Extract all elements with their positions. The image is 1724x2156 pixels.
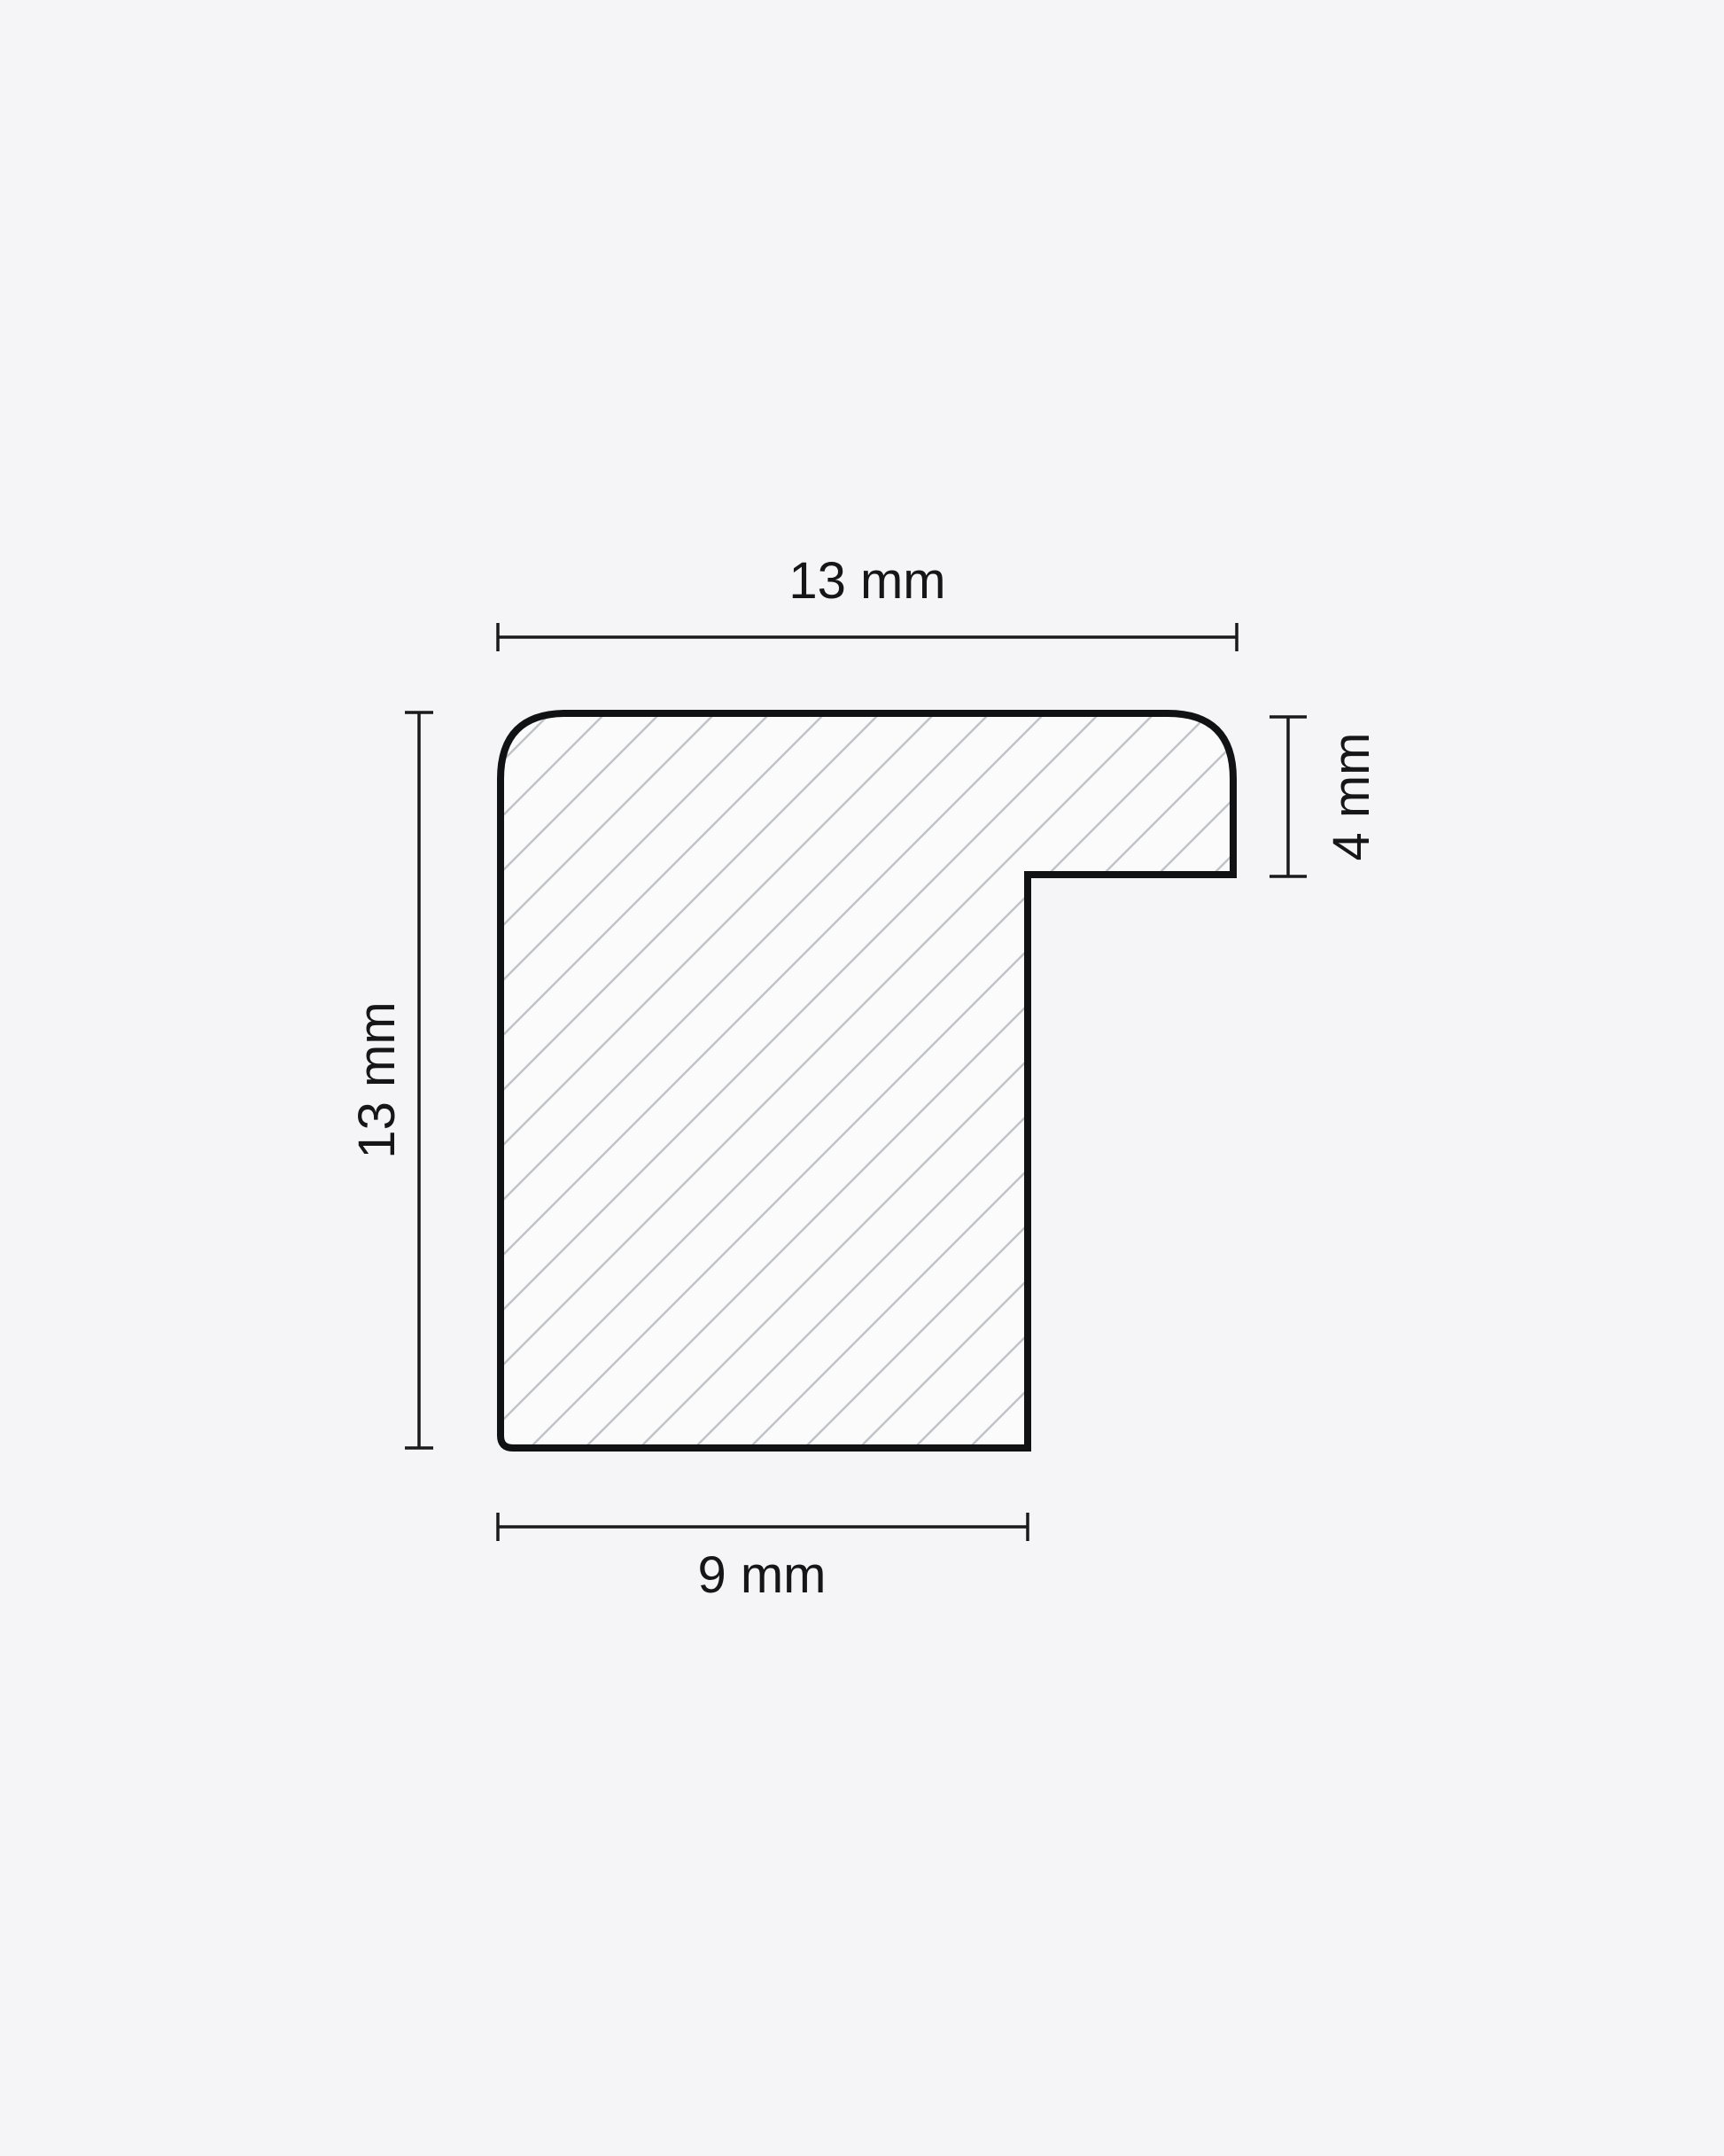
diagram-canvas: 13 mm 13 mm 4 mm 9 mm (0, 0, 1724, 2156)
dimension-left-label: 13 mm (348, 1001, 406, 1158)
dimension-top-label: 13 mm (788, 552, 945, 610)
dimension-left: 13 mm (348, 712, 433, 1448)
dimension-right: 4 mm (1270, 717, 1380, 876)
profile-cross-section-diagram: 13 mm 13 mm 4 mm 9 mm (0, 0, 1724, 2156)
dimension-bottom-label: 9 mm (698, 1546, 827, 1604)
dimension-top: 13 mm (498, 552, 1237, 651)
dimension-bottom: 9 mm (498, 1513, 1028, 1604)
profile-shape (501, 713, 1233, 1448)
dimension-right-label: 4 mm (1323, 733, 1380, 861)
